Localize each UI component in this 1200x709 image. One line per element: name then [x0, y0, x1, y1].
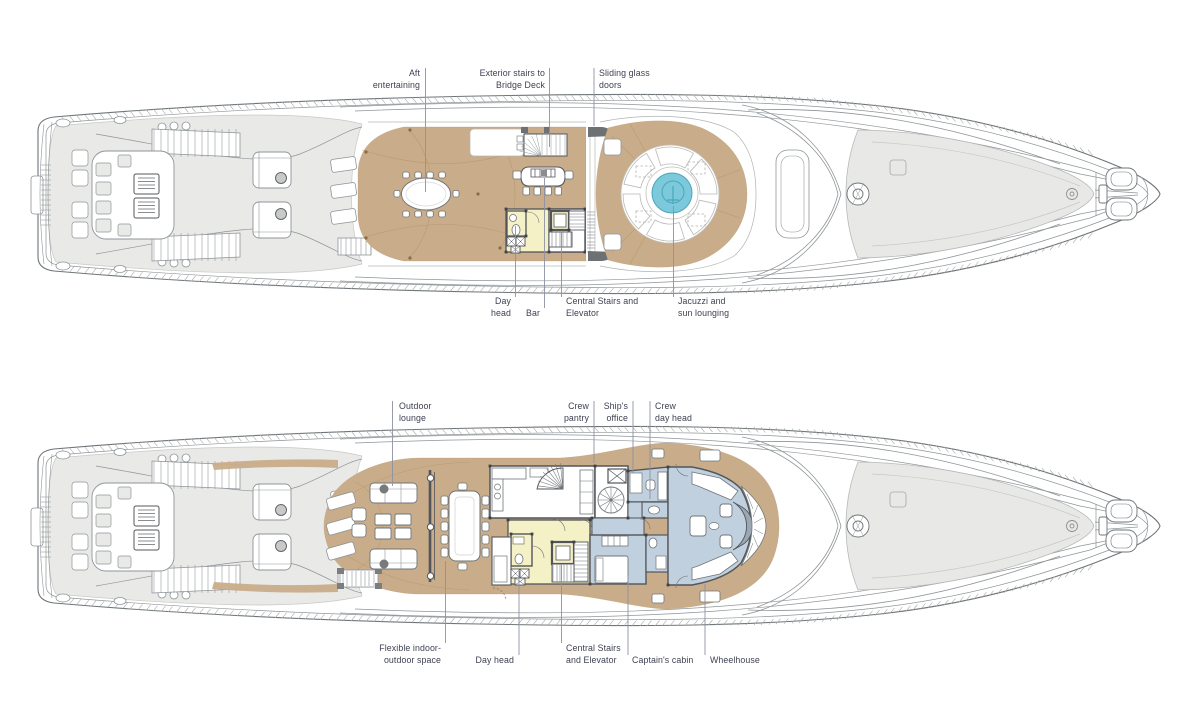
svg-text:sun lounging: sun lounging	[678, 308, 729, 318]
svg-text:Day head: Day head	[476, 655, 514, 665]
svg-text:Exterior stairs to: Exterior stairs to	[480, 68, 545, 78]
svg-text:Crew: Crew	[655, 401, 676, 411]
svg-text:Day: Day	[495, 296, 511, 306]
svg-text:Sliding glass: Sliding glass	[599, 68, 650, 78]
svg-text:day head: day head	[655, 413, 692, 423]
svg-text:Central Stairs and: Central Stairs and	[566, 296, 638, 306]
svg-text:entertaining: entertaining	[373, 80, 420, 90]
svg-text:outdoor space: outdoor space	[384, 655, 441, 665]
svg-text:doors: doors	[599, 80, 622, 90]
svg-text:Captain's cabin: Captain's cabin	[632, 655, 693, 665]
svg-text:lounge: lounge	[399, 413, 426, 423]
svg-text:office: office	[607, 413, 628, 423]
svg-text:head: head	[491, 308, 511, 318]
svg-text:Flexible indoor-: Flexible indoor-	[379, 643, 441, 653]
svg-text:Crew: Crew	[568, 401, 589, 411]
svg-text:Bridge Deck: Bridge Deck	[496, 80, 546, 90]
svg-text:Central Stairs: Central Stairs	[566, 643, 621, 653]
svg-text:Ship's: Ship's	[604, 401, 629, 411]
svg-text:and Elevator: and Elevator	[566, 655, 617, 665]
svg-text:Elevator: Elevator	[566, 308, 599, 318]
svg-text:Wheelhouse: Wheelhouse	[710, 655, 760, 665]
svg-text:Aft: Aft	[409, 68, 421, 78]
svg-text:Outdoor: Outdoor	[399, 401, 432, 411]
svg-text:Jacuzzi and: Jacuzzi and	[678, 296, 726, 306]
svg-text:Bar: Bar	[526, 308, 540, 318]
svg-text:pantry: pantry	[564, 413, 590, 423]
